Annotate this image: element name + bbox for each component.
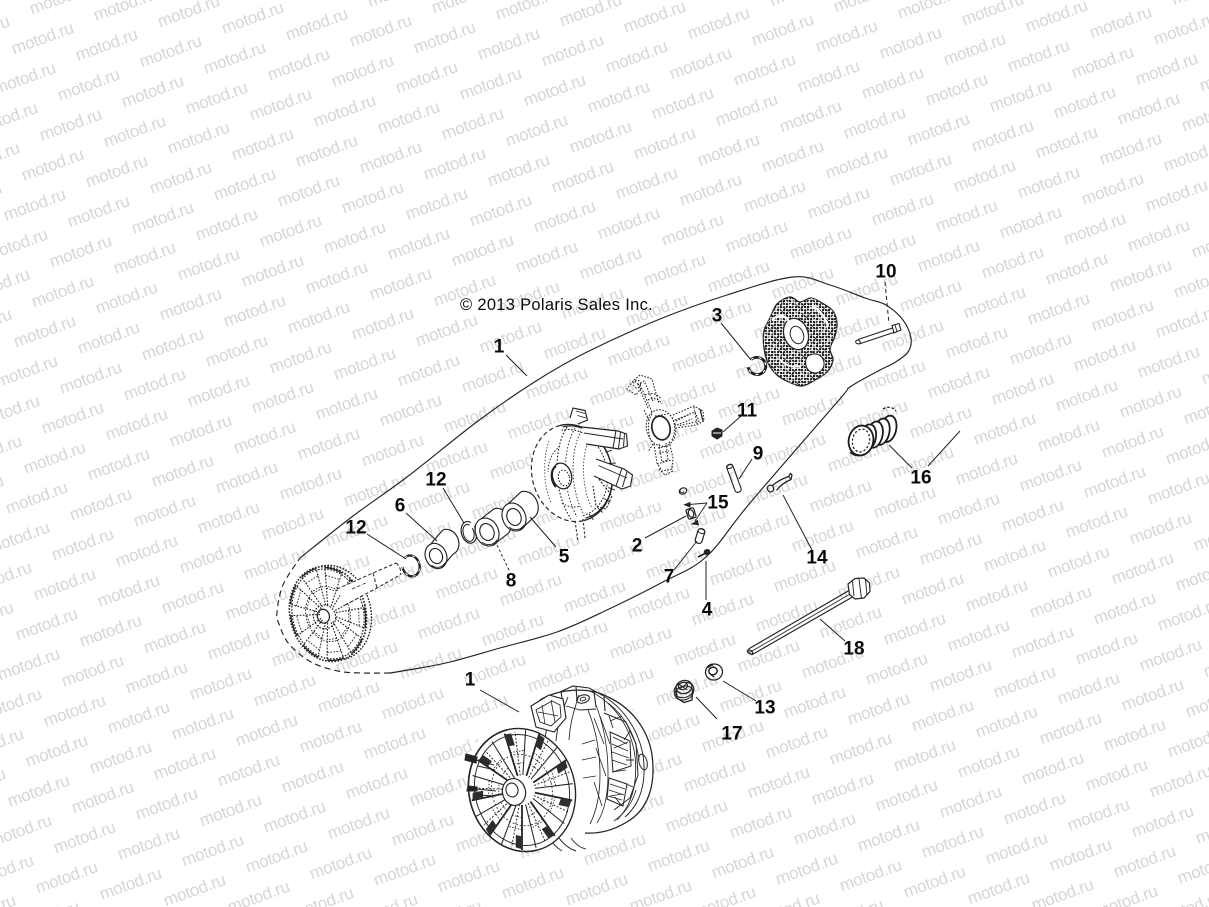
svg-text:motod.ru: motod.ru [817, 602, 884, 642]
svg-text:motod.ru: motod.ru [121, 364, 188, 404]
svg-text:12: 12 [425, 470, 446, 491]
svg-text:motod.ru: motod.ru [917, 529, 984, 569]
svg-text:motod.ru: motod.ru [899, 569, 966, 609]
svg-text:motod.ru: motod.ru [201, 38, 268, 78]
svg-text:motod.ru: motod.ru [0, 431, 24, 471]
svg-text:10: 10 [875, 262, 896, 283]
svg-text:motod.ru: motod.ru [773, 849, 840, 889]
svg-text:motod.ru: motod.ru [499, 863, 566, 903]
svg-text:motod.ru: motod.ru [129, 198, 196, 238]
svg-text:9: 9 [753, 444, 764, 465]
svg-text:motod.ru: motod.ru [159, 577, 226, 617]
svg-text:motod.ru: motod.ru [131, 491, 198, 531]
svg-text:motod.ru: motod.ru [855, 815, 922, 855]
svg-text:motod.ru: motod.ru [943, 322, 1010, 362]
svg-text:motod.ru: motod.ru [991, 662, 1058, 702]
svg-text:motod.ru: motod.ru [1127, 508, 1194, 548]
svg-text:motod.ru: motod.ru [563, 869, 630, 907]
svg-text:motod.ru: motod.ru [1179, 95, 1209, 135]
svg-text:motod.ru: motod.ru [1023, 0, 1090, 36]
svg-text:motod.ru: motod.ru [1155, 595, 1209, 635]
svg-text:motod.ru: motod.ru [901, 862, 968, 902]
svg-text:motod.ru: motod.ru [233, 710, 300, 750]
svg-text:motod.ru: motod.ru [51, 817, 118, 857]
svg-text:motod.ru: motod.ru [15, 897, 82, 907]
svg-text:16: 16 [910, 468, 931, 489]
svg-text:motod.ru: motod.ru [897, 276, 964, 316]
svg-text:motod.ru: motod.ru [845, 689, 912, 729]
svg-text:motod.ru: motod.ru [805, 183, 872, 223]
svg-text:motod.ru: motod.ru [403, 184, 470, 224]
svg-text:motod.ru: motod.ru [951, 156, 1018, 196]
svg-text:motod.ru: motod.ru [5, 771, 72, 811]
svg-text:motod.ru: motod.ru [139, 324, 206, 364]
svg-text:motod.ru: motod.ru [1017, 455, 1084, 495]
svg-text:4: 4 [702, 600, 713, 621]
svg-text:motod.ru: motod.ru [421, 144, 488, 184]
svg-text:motod.ru: motod.ru [477, 317, 544, 357]
svg-text:17: 17 [721, 724, 742, 745]
svg-text:motod.ru: motod.ru [1063, 502, 1130, 542]
svg-text:motod.ru: motod.ru [1145, 468, 1209, 508]
svg-text:motod.ru: motod.ru [31, 564, 98, 604]
svg-text:motod.ru: motod.ru [289, 883, 356, 907]
svg-text:motod.ru: motod.ru [989, 369, 1056, 409]
svg-text:motod.ru: motod.ru [1007, 329, 1074, 369]
svg-text:motod.ru: motod.ru [813, 16, 880, 56]
svg-text:motod.ru: motod.ru [981, 535, 1048, 575]
svg-text:motod.ru: motod.ru [413, 310, 480, 350]
svg-text:motod.ru: motod.ru [779, 389, 846, 429]
svg-text:motod.ru: motod.ru [759, 136, 826, 176]
svg-text:motod.ru: motod.ru [577, 243, 644, 283]
svg-text:motod.ru: motod.ru [1153, 302, 1209, 342]
svg-text:motod.ru: motod.ru [311, 91, 378, 131]
svg-text:motod.ru: motod.ru [645, 836, 712, 876]
svg-text:motod.ru: motod.ru [945, 615, 1012, 655]
svg-text:motod.ru: motod.ru [0, 851, 36, 891]
svg-text:motod.ru: motod.ru [265, 44, 332, 84]
svg-text:motod.ru: motod.ru [0, 391, 42, 431]
svg-text:motod.ru: motod.ru [55, 65, 122, 105]
svg-text:motod.ru: motod.ru [649, 83, 716, 123]
svg-text:motod.ru: motod.ru [539, 30, 606, 70]
svg-text:motod.ru: motod.ru [385, 224, 452, 264]
svg-text:motod.ru: motod.ru [179, 830, 246, 870]
svg-text:motod.ru: motod.ru [1029, 875, 1096, 907]
svg-text:motod.ru: motod.ru [219, 0, 286, 38]
svg-text:motod.ru: motod.ru [0, 724, 26, 764]
svg-text:motod.ru: motod.ru [961, 282, 1028, 322]
svg-text:motod.ru: motod.ru [927, 655, 994, 695]
svg-text:motod.ru: motod.ru [743, 469, 810, 509]
svg-text:motod.ru: motod.ru [713, 90, 780, 130]
svg-text:motod.ru: motod.ru [251, 670, 318, 710]
svg-text:motod.ru: motod.ru [621, 0, 688, 37]
svg-text:motod.ru: motod.ru [365, 0, 432, 11]
svg-text:motod.ru: motod.ru [1137, 635, 1204, 675]
svg-text:motod.ru: motod.ru [1089, 295, 1156, 335]
svg-text:motod.ru: motod.ru [1133, 49, 1200, 89]
svg-text:motod.ru: motod.ru [971, 409, 1038, 449]
svg-text:motod.ru: motod.ru [225, 877, 292, 907]
svg-text:11: 11 [737, 401, 758, 422]
svg-text:motod.ru: motod.ru [411, 17, 478, 57]
svg-text:motod.ru: motod.ru [1157, 888, 1209, 907]
svg-text:motod.ru: motod.ru [937, 782, 1004, 822]
svg-text:motod.ru: motod.ru [203, 331, 270, 371]
svg-text:motod.ru: motod.ru [0, 684, 44, 724]
svg-text:motod.ru: motod.ru [1015, 162, 1082, 202]
svg-text:motod.ru: motod.ru [781, 682, 848, 722]
svg-text:motod.ru: motod.ru [429, 0, 496, 17]
svg-text:motod.ru: motod.ru [935, 489, 1002, 529]
svg-text:motod.ru: motod.ru [393, 57, 460, 97]
svg-text:motod.ru: motod.ru [761, 429, 828, 469]
svg-text:motod.ru: motod.ru [377, 390, 444, 430]
svg-text:motod.ru: motod.ru [155, 0, 222, 31]
svg-text:motod.ru: motod.ru [923, 69, 990, 109]
svg-text:motod.ru: motod.ru [531, 197, 598, 237]
svg-text:motod.ru: motod.ru [831, 0, 898, 16]
svg-text:motod.ru: motod.ru [827, 729, 894, 769]
svg-text:© 2013 Polaris Sales Inc.: © 2013 Polaris Sales Inc. [460, 296, 653, 314]
svg-text:motod.ru: motod.ru [513, 237, 580, 277]
svg-text:motod.ru: motod.ru [329, 51, 396, 91]
svg-text:motod.ru: motod.ru [267, 337, 334, 377]
svg-text:motod.ru: motod.ru [895, 0, 962, 23]
svg-text:motod.ru: motod.ru [1009, 622, 1076, 662]
svg-text:motod.ru: motod.ru [999, 495, 1066, 535]
svg-text:motod.ru: motod.ru [541, 323, 608, 363]
svg-text:motod.ru: motod.ru [295, 424, 362, 464]
svg-text:motod.ru: motod.ru [1087, 2, 1154, 42]
svg-text:motod.ru: motod.ru [869, 189, 936, 229]
svg-text:motod.ru: motod.ru [315, 677, 382, 717]
svg-text:motod.ru: motod.ru [1101, 715, 1168, 755]
svg-text:motod.ru: motod.ru [1043, 249, 1110, 289]
svg-text:motod.ru: motod.ru [1125, 215, 1192, 255]
svg-text:motod.ru: motod.ru [357, 137, 424, 177]
svg-text:motod.ru: motod.ru [1107, 255, 1174, 295]
svg-text:motod.ru: motod.ru [85, 444, 152, 484]
svg-text:5: 5 [559, 547, 570, 568]
svg-text:motod.ru: motod.ru [183, 78, 250, 118]
svg-text:motod.ru: motod.ru [641, 250, 708, 290]
svg-text:motod.ru: motod.ru [1175, 848, 1209, 888]
svg-text:motod.ru: motod.ru [919, 822, 986, 862]
svg-text:motod.ru: motod.ru [953, 449, 1020, 489]
svg-text:motod.ru: motod.ru [689, 589, 756, 629]
svg-text:motod.ru: motod.ru [1065, 795, 1132, 835]
svg-text:motod.ru: motod.ru [147, 158, 214, 198]
svg-text:motod.ru: motod.ru [1061, 209, 1128, 249]
svg-text:motod.ru: motod.ru [359, 430, 426, 470]
svg-text:motod.ru: motod.ru [247, 84, 314, 124]
svg-text:motod.ru: motod.ru [543, 616, 610, 656]
svg-text:motod.ru: motod.ru [0, 98, 40, 138]
svg-text:motod.ru: motod.ru [113, 531, 180, 571]
svg-text:motod.ru: motod.ru [459, 357, 526, 397]
svg-text:motod.ru: motod.ru [185, 371, 252, 411]
svg-text:motod.ru: motod.ru [741, 176, 808, 216]
svg-text:motod.ru: motod.ru [69, 777, 136, 817]
svg-text:motod.ru: motod.ru [521, 70, 588, 110]
svg-text:motod.ru: motod.ru [777, 96, 844, 136]
svg-text:motod.ru: motod.ru [1173, 555, 1209, 595]
svg-text:motod.ru: motod.ru [277, 464, 344, 504]
svg-text:motod.ru: motod.ru [0, 265, 32, 305]
svg-text:motod.ru: motod.ru [987, 76, 1054, 116]
svg-text:15: 15 [707, 493, 729, 514]
svg-text:motod.ru: motod.ru [1081, 462, 1148, 502]
svg-text:motod.ru: motod.ru [49, 524, 116, 564]
svg-text:motod.ru: motod.ru [23, 731, 90, 771]
svg-text:motod.ru: motod.ru [433, 563, 500, 603]
svg-text:motod.ru: motod.ru [205, 624, 272, 664]
svg-text:motod.ru: motod.ru [119, 71, 186, 111]
svg-text:motod.ru: motod.ru [1161, 135, 1209, 175]
svg-text:motod.ru: motod.ru [643, 543, 710, 583]
svg-text:motod.ru: motod.ru [879, 316, 946, 356]
svg-text:motod.ru: motod.ru [303, 257, 370, 297]
svg-text:motod.ru: motod.ru [809, 769, 876, 809]
svg-text:motod.ru: motod.ru [353, 890, 420, 907]
svg-text:motod.ru: motod.ru [763, 722, 830, 762]
svg-text:motod.ru: motod.ru [59, 651, 126, 691]
svg-text:motod.ru: motod.ru [669, 336, 736, 376]
svg-text:motod.ru: motod.ru [1165, 721, 1209, 761]
svg-text:motod.ru: motod.ru [727, 802, 794, 842]
svg-text:13: 13 [754, 698, 775, 719]
svg-text:motod.ru: motod.ru [861, 356, 928, 396]
svg-text:motod.ru: motod.ru [415, 603, 482, 643]
svg-text:motod.ru: motod.ru [1193, 808, 1209, 848]
svg-text:motod.ru: motod.ru [841, 103, 908, 143]
svg-text:motod.ru: motod.ru [659, 210, 726, 250]
svg-text:motod.ru: motod.ru [705, 256, 772, 296]
svg-text:motod.ru: motod.ru [707, 549, 774, 589]
svg-text:motod.ru: motod.ru [0, 518, 52, 558]
svg-text:motod.ru: motod.ru [0, 558, 34, 598]
svg-text:motod.ru: motod.ru [891, 735, 958, 775]
svg-text:motod.ru: motod.ru [1135, 342, 1202, 382]
svg-text:motod.ru: motod.ru [1171, 262, 1209, 302]
svg-text:motod.ru: motod.ru [1027, 582, 1094, 622]
svg-text:motod.ru: motod.ru [881, 609, 948, 649]
svg-text:motod.ru: motod.ru [87, 737, 154, 777]
svg-text:motod.ru: motod.ru [859, 63, 926, 103]
svg-text:motod.ru: motod.ru [301, 0, 368, 4]
svg-text:motod.ru: motod.ru [39, 398, 106, 438]
svg-text:motod.ru: motod.ru [1163, 428, 1209, 468]
svg-text:motod.ru: motod.ru [0, 138, 22, 178]
svg-text:motod.ru: motod.ru [769, 263, 836, 303]
svg-text:motod.ru: motod.ru [331, 344, 398, 384]
svg-text:motod.ru: motod.ru [663, 796, 730, 836]
svg-text:motod.ru: motod.ru [0, 891, 18, 907]
svg-text:motod.ru: motod.ru [361, 723, 428, 763]
svg-text:motod.ru: motod.ru [1119, 675, 1186, 715]
svg-text:motod.ru: motod.ru [1199, 348, 1209, 388]
svg-text:motod.ru: motod.ru [21, 438, 88, 478]
svg-text:motod.ru: motod.ru [603, 37, 670, 77]
svg-text:motod.ru: motod.ru [731, 50, 798, 90]
svg-text:motod.ru: motod.ru [261, 797, 328, 837]
svg-text:motod.ru: motod.ru [983, 828, 1050, 868]
svg-text:motod.ru: motod.ru [243, 837, 310, 877]
svg-text:motod.ru: motod.ru [0, 644, 62, 684]
svg-text:motod.ru: motod.ru [77, 611, 144, 651]
svg-text:motod.ru: motod.ru [1111, 841, 1178, 881]
svg-text:motod.ru: motod.ru [695, 130, 762, 170]
svg-text:motod.ru: motod.ru [837, 855, 904, 895]
svg-text:motod.ru: motod.ru [313, 384, 380, 424]
svg-text:motod.ru: motod.ru [249, 377, 316, 417]
svg-text:motod.ru: motod.ru [493, 0, 560, 24]
svg-text:motod.ru: motod.ru [397, 643, 464, 683]
svg-text:motod.ru: motod.ru [187, 664, 254, 704]
svg-text:motod.ru: motod.ru [33, 857, 100, 897]
svg-text:motod.ru: motod.ru [955, 742, 1022, 782]
svg-text:motod.ru: motod.ru [0, 351, 60, 391]
svg-text:motod.ru: motod.ru [0, 225, 50, 265]
svg-text:motod.ru: motod.ru [561, 576, 628, 616]
svg-text:motod.ru: motod.ru [133, 784, 200, 824]
svg-text:motod.ru: motod.ru [95, 571, 162, 611]
svg-text:motod.ru: motod.ru [1045, 542, 1112, 582]
svg-text:motod.ru: motod.ru [671, 629, 738, 669]
svg-text:motod.ru: motod.ru [1117, 382, 1184, 422]
svg-text:motod.ru: motod.ru [137, 31, 204, 71]
svg-text:motod.ru: motod.ru [343, 763, 410, 803]
svg-text:motod.ru: motod.ru [1183, 681, 1209, 721]
svg-text:motod.ru: motod.ru [941, 29, 1008, 69]
svg-text:motod.ru: motod.ru [933, 196, 1000, 236]
svg-text:motod.ru: motod.ru [1033, 122, 1100, 162]
svg-text:motod.ru: motod.ru [259, 504, 326, 544]
svg-text:motod.ru: motod.ru [241, 544, 308, 584]
svg-text:motod.ru: motod.ru [347, 11, 414, 51]
svg-text:motod.ru: motod.ru [389, 810, 456, 850]
svg-text:motod.ru: motod.ru [27, 0, 94, 18]
svg-text:motod.ru: motod.ru [467, 190, 534, 230]
svg-text:motod.ru: motod.ru [37, 105, 104, 145]
svg-text:motod.ru: motod.ru [567, 117, 634, 157]
svg-text:motod.ru: motod.ru [441, 397, 508, 437]
svg-text:motod.ru: motod.ru [213, 457, 280, 497]
svg-text:motod.ru: motod.ru [223, 584, 290, 624]
svg-text:motod.ru: motod.ru [607, 623, 674, 663]
svg-text:motod.ru: motod.ru [755, 889, 822, 907]
svg-text:motod.ru: motod.ru [479, 610, 546, 650]
svg-text:motod.ru: motod.ru [0, 58, 58, 98]
svg-text:motod.ru: motod.ru [819, 895, 886, 907]
svg-text:motod.ru: motod.ru [221, 291, 288, 331]
svg-text:motod.ru: motod.ru [753, 596, 820, 636]
svg-text:motod.ru: motod.ru [1091, 588, 1158, 628]
svg-text:motod.ru: motod.ru [167, 411, 234, 451]
svg-text:motod.ru: motod.ru [965, 868, 1032, 907]
svg-text:motod.ru: motod.ru [625, 583, 692, 623]
svg-text:motod.ru: motod.ru [979, 242, 1046, 282]
svg-text:motod.ru: motod.ru [169, 704, 236, 744]
svg-text:motod.ru: motod.ru [1099, 422, 1166, 462]
svg-text:motod.ru: motod.ru [1189, 222, 1209, 262]
svg-text:motod.ru: motod.ru [19, 145, 86, 185]
svg-text:motod.ru: motod.ru [375, 97, 442, 137]
svg-text:motod.ru: motod.ru [103, 404, 170, 444]
svg-text:motod.ru: motod.ru [1083, 755, 1150, 795]
svg-text:motod.ru: motod.ru [9, 18, 76, 58]
svg-text:2: 2 [632, 536, 643, 557]
svg-text:motod.ru: motod.ru [1019, 748, 1086, 788]
svg-text:motod.ru: motod.ru [1079, 169, 1146, 209]
svg-text:motod.ru: motod.ru [97, 864, 164, 904]
svg-text:motod.ru: motod.ru [627, 876, 694, 907]
svg-text:motod.ru: motod.ru [515, 530, 582, 570]
svg-text:motod.ru: motod.ru [0, 811, 54, 851]
svg-text:motod.ru: motod.ru [475, 24, 542, 64]
svg-text:motod.ru: motod.ru [549, 157, 616, 197]
svg-text:motod.ru: motod.ru [123, 657, 190, 697]
svg-text:motod.ru: motod.ru [197, 790, 264, 830]
svg-text:motod.ru: motod.ru [0, 0, 30, 12]
svg-text:motod.ru: motod.ru [1037, 708, 1104, 748]
svg-text:motod.ru: motod.ru [371, 850, 438, 890]
svg-text:motod.ru: motod.ru [195, 497, 262, 537]
svg-text:motod.ru: motod.ru [395, 350, 462, 390]
svg-text:motod.ru: motod.ru [229, 124, 296, 164]
svg-text:motod.ru: motod.ru [0, 598, 16, 638]
svg-text:motod.ru: motod.ru [339, 177, 406, 217]
svg-text:motod.ru: motod.ru [1047, 835, 1114, 875]
svg-text:motod.ru: motod.ru [691, 882, 758, 907]
svg-text:motod.ru: motod.ru [631, 123, 698, 163]
svg-text:motod.ru: motod.ru [863, 649, 930, 689]
svg-text:motod.ru: motod.ru [141, 617, 208, 657]
svg-text:motod.ru: motod.ru [963, 575, 1030, 615]
svg-text:motod.ru: motod.ru [41, 691, 108, 731]
svg-text:motod.ru: motod.ru [115, 824, 182, 864]
svg-text:motod.ru: motod.ru [997, 202, 1064, 242]
svg-text:motod.ru: motod.ru [1169, 0, 1209, 9]
svg-text:motod.ru: motod.ru [1151, 9, 1209, 49]
svg-text:motod.ru: motod.ru [105, 697, 172, 737]
svg-text:motod.ru: motod.ru [749, 10, 816, 50]
svg-text:8: 8 [506, 571, 517, 592]
svg-text:motod.ru: motod.ru [175, 244, 242, 284]
svg-text:motod.ru: motod.ru [1105, 0, 1172, 2]
svg-text:motod.ru: motod.ru [787, 223, 854, 263]
svg-text:motod.ru: motod.ru [725, 509, 792, 549]
svg-text:motod.ru: motod.ru [1005, 36, 1072, 76]
svg-text:motod.ru: motod.ru [1055, 668, 1122, 708]
svg-text:motod.ru: motod.ru [1001, 788, 1068, 828]
svg-text:motod.ru: motod.ru [1129, 801, 1196, 841]
svg-text:motod.ru: motod.ru [853, 522, 920, 562]
svg-text:18: 18 [843, 639, 864, 660]
svg-text:motod.ru: motod.ru [907, 402, 974, 442]
svg-text:motod.ru: motod.ru [1191, 515, 1209, 555]
svg-text:motod.ru: motod.ru [283, 4, 350, 44]
svg-text:motod.ru: motod.ru [57, 358, 124, 398]
svg-text:6: 6 [395, 496, 406, 517]
svg-text:motod.ru: motod.ru [211, 164, 278, 204]
svg-text:motod.ru: motod.ru [111, 238, 178, 278]
svg-text:motod.ru: motod.ru [449, 230, 516, 270]
svg-text:motod.ru: motod.ru [275, 171, 342, 211]
